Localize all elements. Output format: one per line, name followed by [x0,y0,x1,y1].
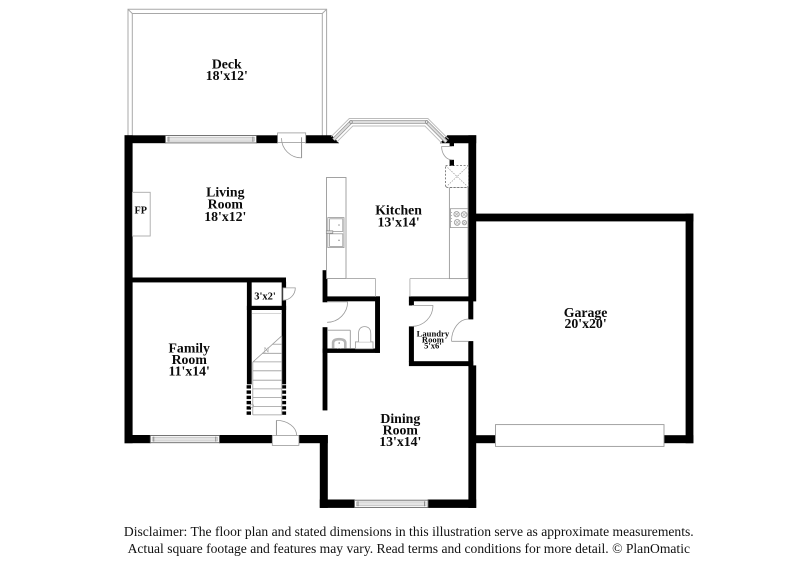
svg-text:18'x12': 18'x12' [204,209,246,224]
svg-text:Disclaimer: The floor plan and: Disclaimer: The floor plan and stated di… [124,524,694,539]
svg-text:18'x12': 18'x12' [206,68,248,83]
svg-text:13'x14': 13'x14' [378,215,420,230]
svg-text:FP: FP [134,205,146,216]
svg-text:11'x14': 11'x14' [168,363,209,378]
svg-text:Actual square footage and feat: Actual square footage and features may v… [128,541,690,556]
svg-text:13'x14': 13'x14' [379,434,421,449]
svg-text:N: N [264,345,270,354]
svg-text:5'x6': 5'x6' [424,341,442,351]
svg-text:3'x2': 3'x2' [254,291,276,302]
svg-text:20'x20': 20'x20' [565,316,607,331]
